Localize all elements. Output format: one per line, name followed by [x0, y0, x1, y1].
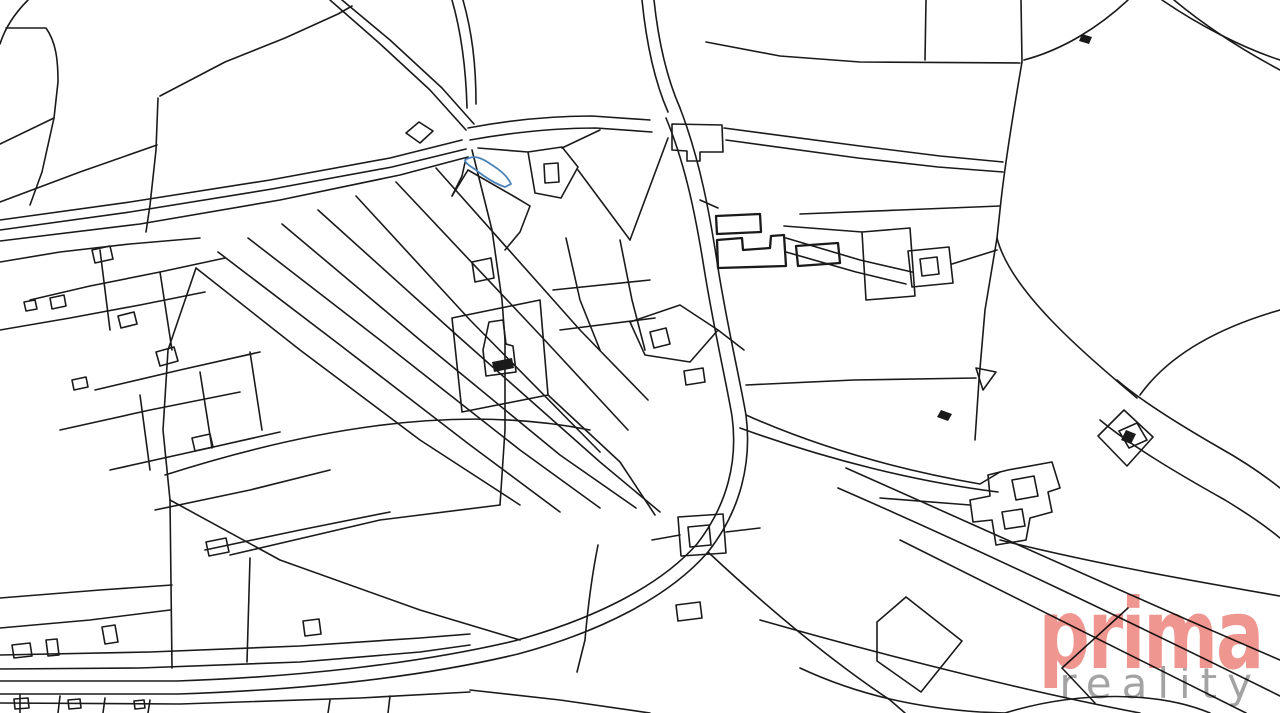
map-canvas [0, 0, 1280, 713]
cadastral-map: prima reality [0, 0, 1280, 713]
